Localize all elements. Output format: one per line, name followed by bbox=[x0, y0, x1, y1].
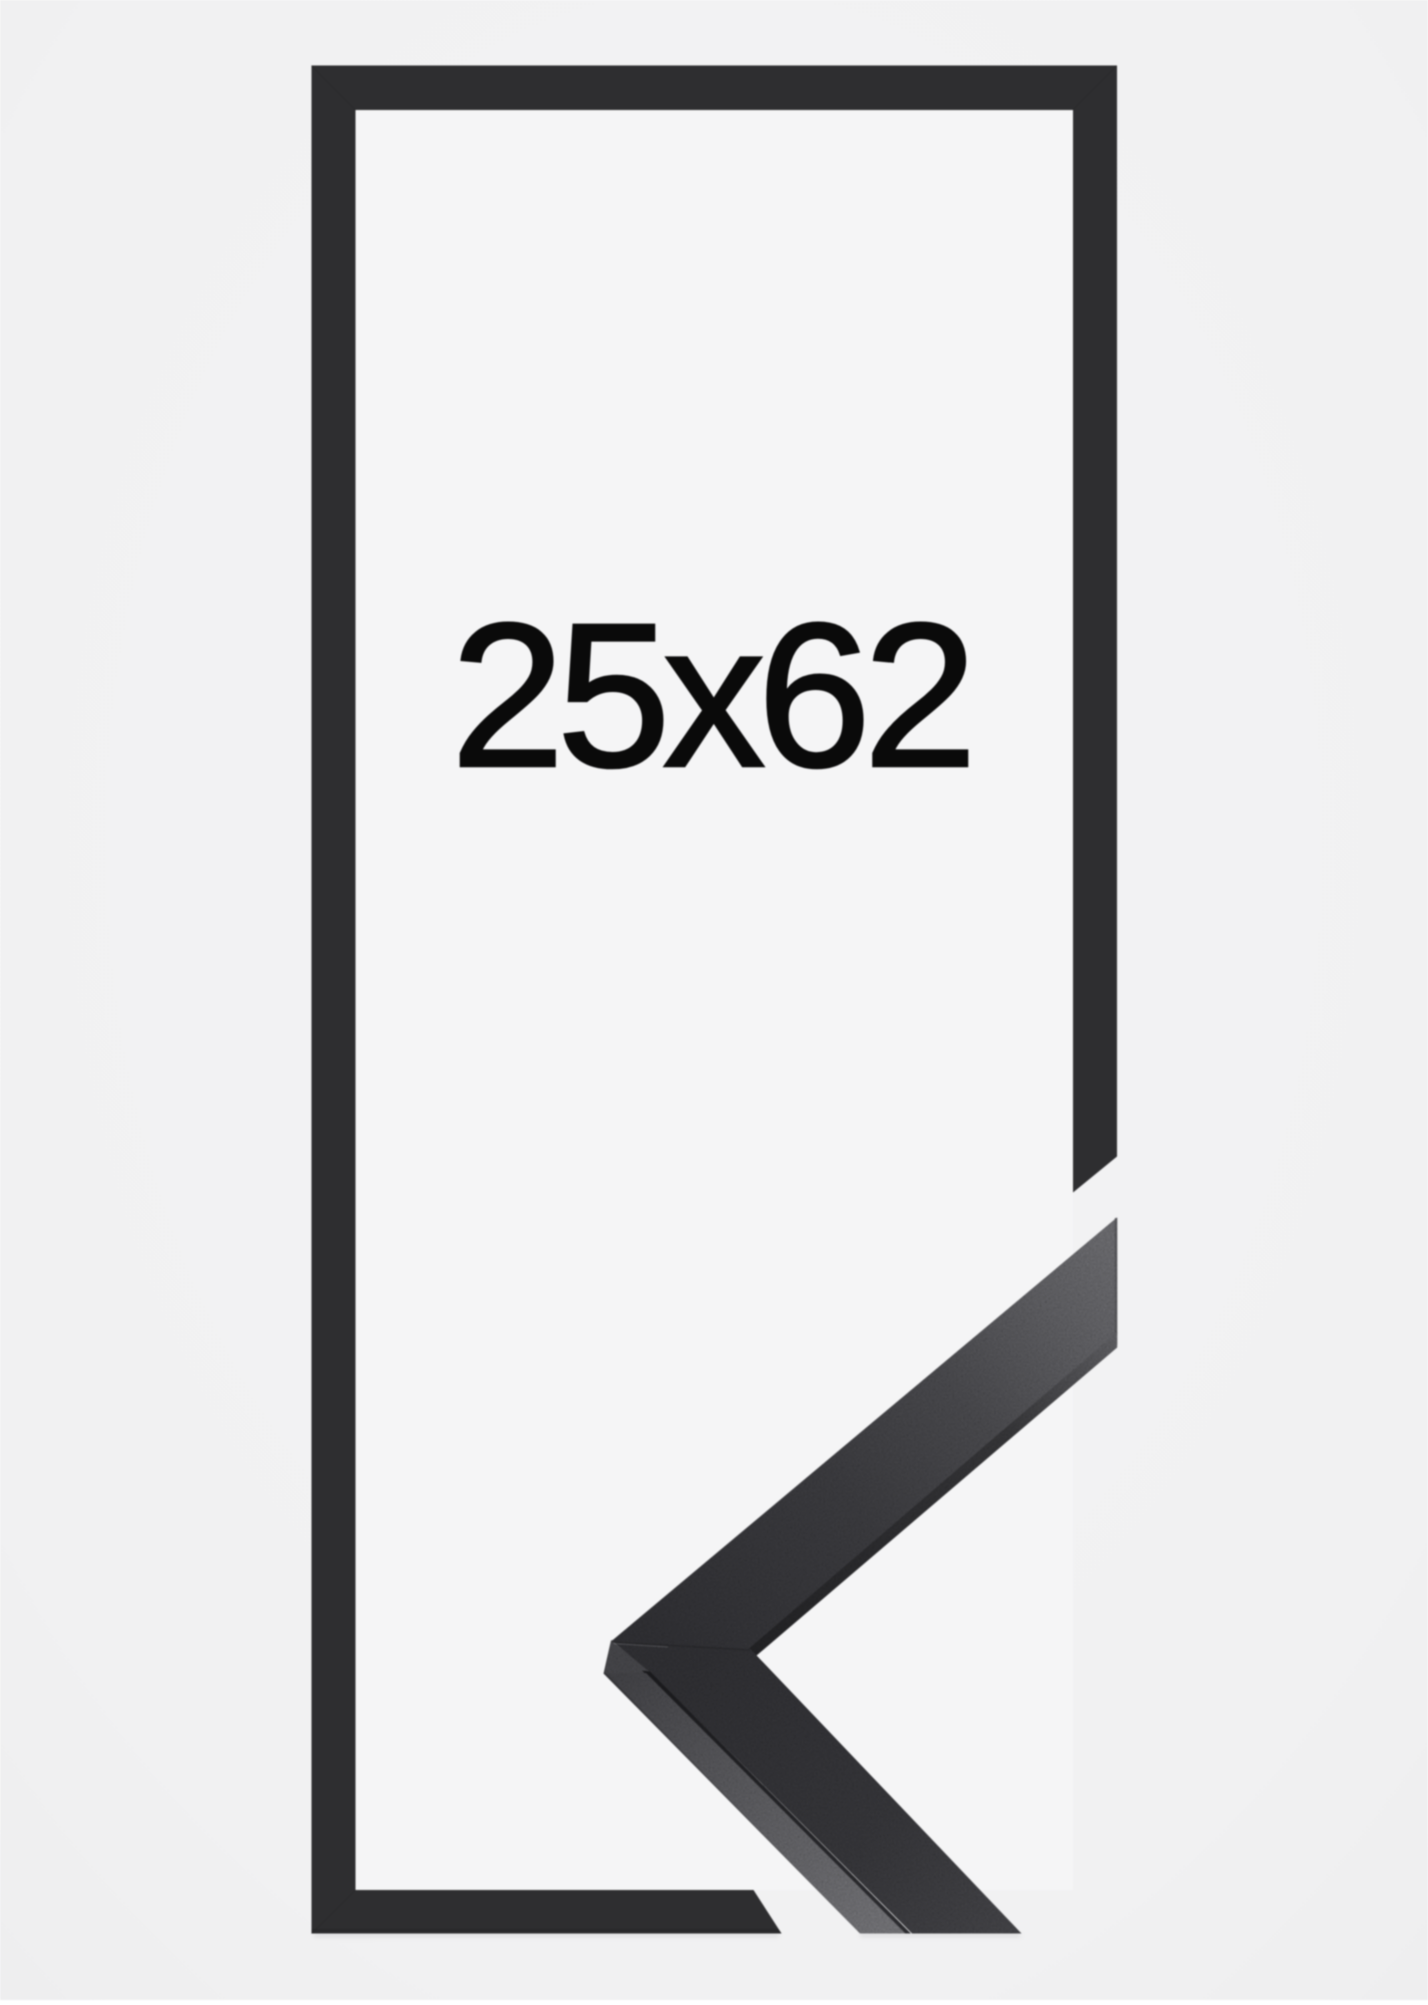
svg-text:25x62: 25x62 bbox=[451, 581, 970, 810]
